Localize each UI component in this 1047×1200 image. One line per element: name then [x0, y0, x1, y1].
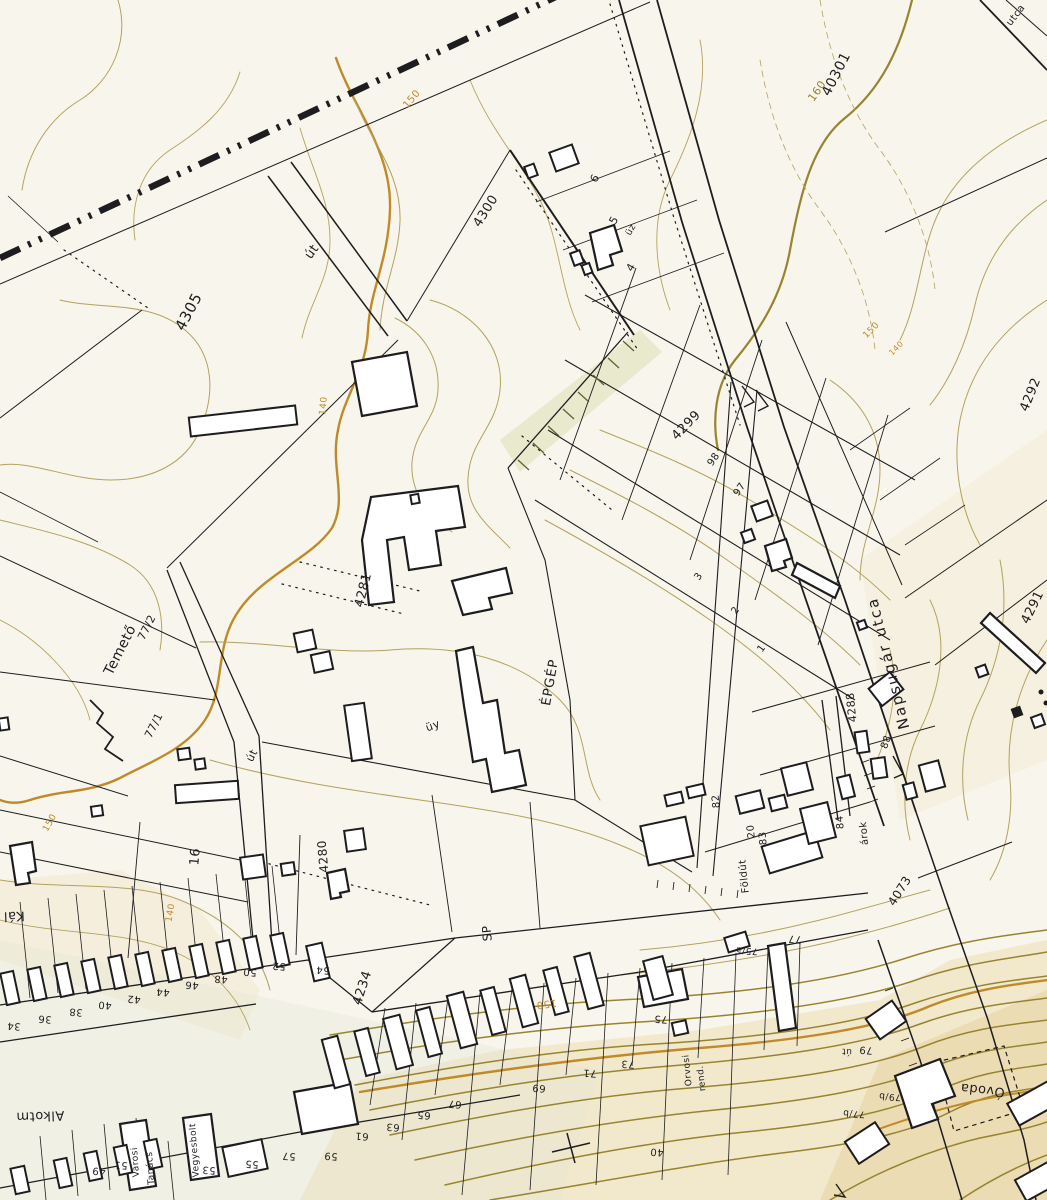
map-label: 40: [650, 1146, 664, 1158]
building-footprint: [549, 144, 578, 171]
cadastral-line: [755, 378, 826, 600]
cadastral-line: [585, 295, 915, 480]
cadastral-line: [0, 2, 650, 284]
map-label: ÉPGÉP: [538, 658, 562, 707]
cadastral-line: [535, 500, 855, 700]
building-footprint: [243, 936, 262, 970]
building-footprint: [672, 1020, 688, 1036]
map-label: 57: [282, 1150, 296, 1162]
map-label: 75/a: [736, 944, 759, 956]
cadastral-line: [308, 938, 455, 960]
map-label: SP: [479, 925, 494, 942]
map-label: 69: [532, 1082, 546, 1094]
building-footprint: [344, 828, 366, 851]
map-label: 150: [401, 88, 423, 111]
map-label: 84: [834, 815, 846, 830]
map-label: Földút: [736, 859, 751, 894]
contour-line: [715, 0, 912, 450]
building-footprint: [871, 757, 888, 779]
map-label: 34: [7, 1020, 21, 1032]
map-label: 77/1: [142, 711, 166, 741]
building-footprint: [327, 869, 349, 899]
map-label: 61: [355, 1130, 369, 1142]
building-footprint: [686, 784, 705, 799]
cadastral-line: [508, 332, 628, 468]
contour-line: [22, 0, 122, 190]
building-footprint: [903, 782, 918, 799]
building-footprint: [781, 762, 813, 795]
building-footprint: [240, 855, 266, 880]
map-label: 67: [448, 1098, 462, 1110]
contour-line: [0, 620, 90, 720]
cadastral-line: [530, 802, 540, 928]
cadastral-line: [565, 360, 900, 555]
map-label: Kál: [3, 908, 25, 924]
paper-tint-wash: [860, 430, 1047, 820]
map-label: 46: [185, 979, 199, 991]
map-label: 77: [788, 933, 802, 945]
building-footprint: [344, 703, 372, 761]
building-footprint: [1031, 714, 1045, 728]
building-footprint: [177, 748, 190, 761]
cadastral-line: [0, 556, 196, 648]
survey-point-dot: [1039, 690, 1044, 695]
building-footprint: [855, 731, 870, 753]
cadastral-line: [8, 196, 58, 242]
map-label: 75: [654, 1013, 668, 1025]
map-label: 4300: [470, 192, 501, 230]
building-footprint: [736, 790, 765, 814]
map-label: 40: [98, 999, 112, 1011]
map-label: 63: [386, 1121, 400, 1133]
cadastral-line: [657, 880, 658, 888]
contour-line: [300, 128, 330, 338]
map-label: 5: [606, 214, 621, 227]
building-footprint: [837, 775, 855, 799]
map-label: 6: [587, 172, 602, 185]
cadastral-line: [756, 390, 768, 411]
building-footprint: [976, 665, 989, 678]
map-label: 82: [710, 794, 722, 809]
building-footprint: [352, 352, 417, 416]
map-label: Városi: [130, 1147, 142, 1178]
cadastral-line: [0, 756, 128, 796]
tint-wash-layer: [0, 330, 1047, 1200]
contour-line: [200, 642, 600, 800]
contour-line: [830, 380, 880, 580]
map-label: 51: [114, 1159, 128, 1171]
map-label: 83: [757, 831, 769, 846]
building-footprint: [294, 630, 317, 653]
building-footprint: [741, 529, 755, 543]
dotted-fence-line: [64, 250, 148, 308]
building-footprint: [857, 620, 867, 630]
map-label: 4292: [1017, 376, 1044, 414]
map-label: 3: [692, 571, 705, 583]
cadastral-line: [0, 672, 215, 700]
building-footprint: [570, 250, 584, 266]
map-label: 140: [318, 396, 330, 415]
map-label: 4280: [315, 840, 332, 874]
cadastral-line: [455, 893, 868, 938]
map-label: 53: [202, 1164, 216, 1176]
building-footprint: [294, 1082, 358, 1134]
map-label: 150: [535, 997, 557, 1011]
contour-line: [760, 60, 875, 350]
contour-line: [570, 470, 860, 665]
map-label: 55: [245, 1158, 259, 1170]
map-label: 71: [583, 1067, 597, 1079]
map-label: 54: [316, 964, 330, 976]
building-footprint: [281, 862, 296, 876]
building-footprint: [194, 758, 205, 769]
map-label: 77/b: [842, 1107, 865, 1119]
building-footprint: [769, 795, 788, 811]
cadastral-line: [721, 888, 722, 896]
map-label: 4073: [885, 873, 914, 908]
map-label: 59: [324, 1150, 338, 1162]
map-label: 79/b: [878, 1090, 901, 1102]
map-label: 140: [887, 339, 905, 357]
map-label: 49: [92, 1165, 106, 1177]
cadastral-line: [0, 310, 142, 418]
cadastral-line: [90, 700, 123, 761]
contour-line: [930, 200, 1047, 405]
map-label: 4: [623, 261, 638, 274]
building-footprint: [751, 501, 772, 522]
map-label: 52: [272, 960, 286, 972]
map-label: 97: [732, 481, 749, 499]
map-label: Temető: [101, 622, 140, 678]
cadastral-line: [737, 890, 738, 898]
building-footprint: [1012, 707, 1022, 717]
building-footprint: [452, 568, 512, 615]
cadastral-line: [407, 150, 510, 321]
map-label: Alkotm: [16, 1107, 65, 1124]
cadastral-line: [296, 835, 300, 955]
map-label: út: [243, 747, 260, 764]
map-label: 150: [41, 812, 59, 833]
map-label: 38: [69, 1006, 83, 1018]
map-label: 79: [859, 1044, 873, 1056]
building-footprint: [768, 943, 796, 1031]
map-label: 20: [745, 824, 757, 839]
building-footprint: [189, 406, 297, 437]
map-label: 4234: [350, 969, 375, 1007]
building-footprint: [311, 651, 333, 673]
cadastral-line: [880, 458, 940, 500]
building-footprint: [640, 817, 693, 866]
map-label: 4288: [843, 692, 859, 723]
map-label: 4305: [171, 290, 206, 334]
contour-line: [134, 72, 240, 240]
building-footprint: [91, 805, 103, 816]
cadastral-line: [786, 322, 902, 585]
building-footprint: [664, 792, 683, 807]
map-label: 73: [621, 1058, 635, 1070]
map-label: 42: [127, 993, 141, 1005]
map-label: 48: [214, 973, 228, 985]
map-label: 150: [861, 320, 881, 340]
cadastral-line: [432, 795, 452, 932]
cadastral-line: [705, 886, 706, 894]
map-label: 65: [417, 1109, 431, 1121]
topographic-map-svg: 4305út430065üz440301utca4292429998973214…: [0, 0, 1047, 1200]
cadastral-line: [673, 882, 674, 890]
map-label: 77/2: [135, 613, 159, 643]
map-label: 16: [187, 847, 203, 866]
map-label: üy: [424, 717, 442, 734]
map-label: 2: [729, 605, 742, 617]
cadastral-line: [0, 492, 98, 542]
building-footprint: [0, 717, 9, 730]
map-label: út: [841, 1046, 852, 1057]
map-scan: 4305út430065üz440301utca4292429998973214…: [0, 0, 1047, 1200]
cadastral-line: [850, 408, 910, 450]
building-footprint: [410, 494, 419, 504]
building-footprint: [480, 987, 505, 1035]
cadastral-line: [268, 176, 388, 336]
cadastral-line: [0, 810, 250, 862]
building-footprint: [582, 263, 593, 275]
building-footprint: [590, 225, 622, 270]
building-footprint: [175, 781, 239, 803]
map-label: 44: [156, 986, 170, 998]
contour-line: [820, 0, 935, 290]
contour-line: [600, 430, 890, 600]
cadastral-line: [885, 158, 1047, 232]
map-label: árok: [857, 821, 871, 846]
map-label: 50: [243, 966, 257, 978]
building-footprint: [510, 975, 538, 1027]
cadastral-line: [262, 742, 575, 800]
map-label: üz: [624, 223, 638, 238]
map-label: 98: [706, 451, 723, 469]
map-label: 36: [38, 1013, 52, 1025]
